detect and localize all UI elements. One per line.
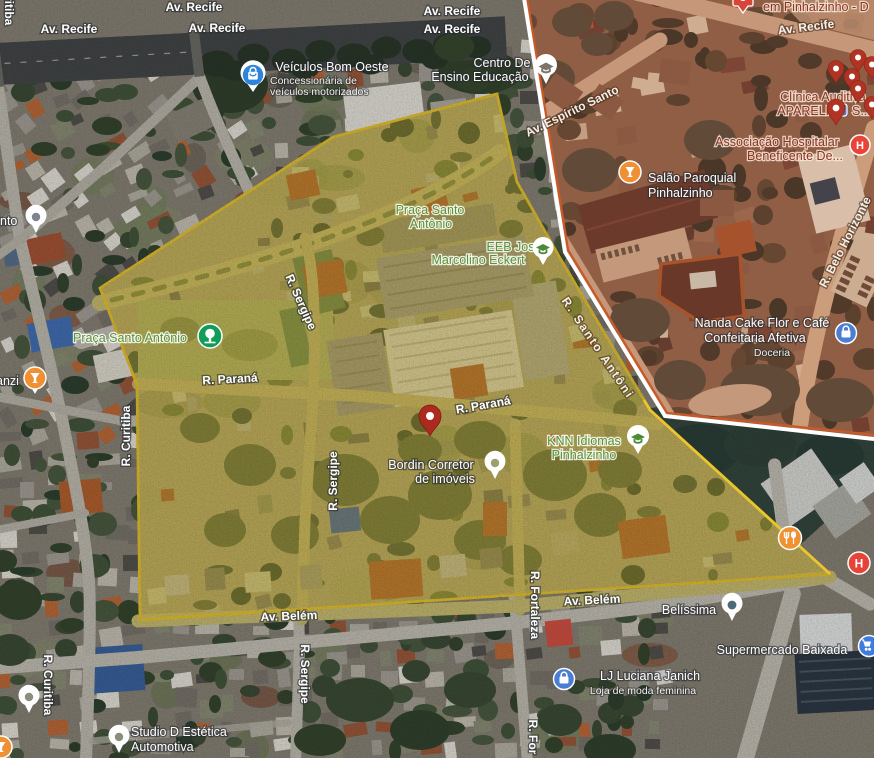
svg-text:Av. Belém: Av. Belém [260, 608, 317, 624]
svg-text:R. Fortaleza: R. Fortaleza [528, 571, 542, 639]
svg-text:Confeitaria Afetiva: Confeitaria Afetiva [704, 331, 805, 345]
svg-text:Pinhalzinho: Pinhalzinho [648, 186, 713, 200]
svg-text:Av. Belém: Av. Belém [563, 592, 620, 609]
svg-text:Belíssima: Belíssima [662, 603, 716, 617]
svg-text:R. Sergipe: R. Sergipe [298, 644, 312, 704]
svg-text:veículos motorizados: veículos motorizados [270, 86, 369, 98]
svg-text:R. Paraná: R. Paraná [202, 371, 258, 388]
svg-text:R. Curitiba: R. Curitiba [2, 0, 16, 26]
svg-text:Studio D Estética: Studio D Estética [131, 725, 227, 739]
svg-text:R. Curitiba: R. Curitiba [119, 405, 133, 466]
svg-text:Supermercado Baixada: Supermercado Baixada [717, 643, 848, 657]
svg-text:Av. Recife: Av. Recife [41, 22, 98, 36]
svg-text:Ensino Educação: Ensino Educação [431, 70, 528, 84]
svg-text:H: H [855, 557, 864, 571]
svg-text:Pinhalzinho: Pinhalzinho [552, 448, 617, 462]
svg-text:Praça Santo Antônio: Praça Santo Antônio [73, 331, 187, 345]
svg-text:Av. Recife: Av. Recife [424, 4, 481, 18]
svg-text:Marcolino Eckert: Marcolino Eckert [431, 253, 525, 267]
svg-text:Salão Paroquial: Salão Paroquial [648, 171, 736, 185]
svg-text:nto: nto [0, 214, 17, 228]
svg-text:Loja de moda feminina: Loja de moda feminina [590, 685, 696, 697]
svg-text:Beneficente De...: Beneficente De... [747, 149, 843, 163]
svg-text:Veículos Bom Oeste: Veículos Bom Oeste [275, 60, 388, 74]
svg-text:Bordin Corretor: Bordin Corretor [388, 458, 473, 472]
svg-text:R. Sergipe: R. Sergipe [326, 451, 340, 511]
svg-text:de imóveis: de imóveis [415, 472, 475, 486]
svg-text:Antônio: Antônio [410, 217, 452, 231]
svg-text:R. Curitiba: R. Curitiba [41, 655, 55, 716]
svg-text:em Pinhalzinho - D: em Pinhalzinho - D [763, 0, 869, 14]
svg-text:Associação Hospitalar: Associação Hospitalar [715, 135, 839, 149]
svg-text:Nanda Cake Flor e Café: Nanda Cake Flor e Café [695, 316, 830, 330]
svg-text:APARELH: APARELH [777, 104, 834, 118]
svg-text:Praça Santo: Praça Santo [396, 203, 465, 217]
svg-text:Centro De: Centro De [474, 56, 531, 70]
svg-text:Av. Recife: Av. Recife [424, 22, 481, 36]
svg-text:Automotiva: Automotiva [131, 740, 194, 754]
svg-text:Av. Recife: Av. Recife [166, 0, 223, 14]
svg-text:Doceria: Doceria [754, 347, 790, 359]
svg-text:R. For: R. For [526, 720, 540, 755]
svg-text:LJ Luciana Janich: LJ Luciana Janich [600, 669, 700, 683]
svg-text:H: H [856, 140, 864, 152]
svg-text:anzi: anzi [0, 374, 19, 388]
svg-text:KNN Idiomas: KNN Idiomas [547, 434, 621, 448]
svg-text:Av. Recife: Av. Recife [189, 21, 246, 35]
